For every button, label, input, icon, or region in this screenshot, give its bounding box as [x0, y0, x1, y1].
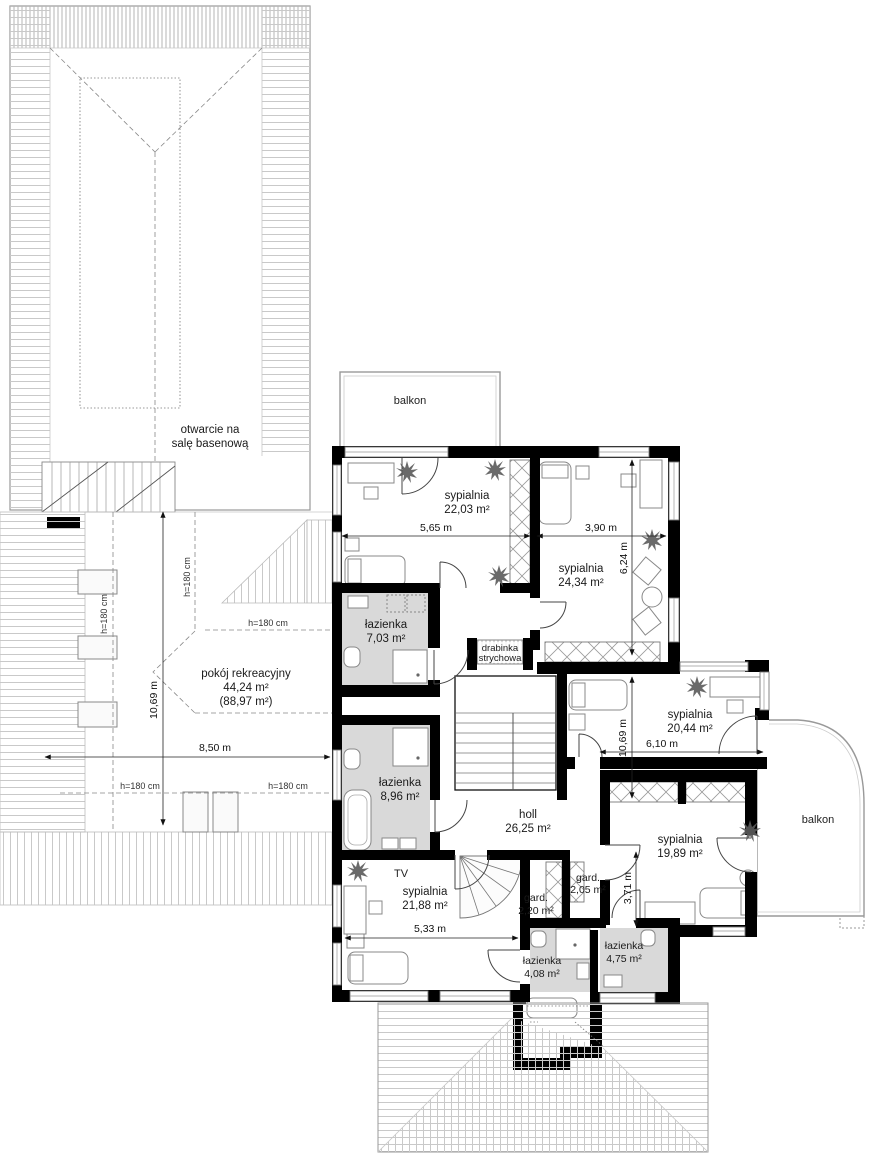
label-lazienka-896-name: łazienka: [379, 777, 422, 789]
label-lazienka-896-area: 8,96 m²: [381, 791, 420, 803]
dim-5-65: 5,65 m: [420, 522, 452, 534]
dim-3-71: 3,71 m: [622, 872, 634, 904]
label-lazienka-408-name: łazienka: [523, 955, 562, 967]
label-sypialnia-2434-area: 24,34 m²: [558, 577, 604, 589]
dim-3-90: 3,90 m: [585, 522, 617, 534]
label-gard-220-area: 2,20 m²: [518, 905, 554, 917]
label-sypialnia-2203-name: sypialnia: [445, 490, 490, 502]
floor-plan: 5,65 m 3,90 m 6,24 m 10,69 m 6,10 m 10,6…: [0, 0, 880, 1159]
label-sypialnia-2203-area: 22,03 m²: [444, 504, 490, 516]
label-gard-205-name: gard.: [576, 872, 600, 884]
label-sypialnia-2044-name: sypialnia: [668, 709, 713, 721]
label-gard-205-area: 2,05 m²: [570, 884, 606, 896]
label-lazienka-703-area: 7,03 m²: [367, 633, 406, 645]
balcony-top: [340, 372, 500, 450]
dim-h180: h=180 cm: [268, 781, 308, 791]
label-rekreacyjny-area2: (88,97 m²): [219, 696, 272, 708]
dim-h180: h=180 cm: [248, 618, 288, 628]
label-lazienka-475-area: 4,75 m²: [606, 953, 642, 965]
recreation-area: [0, 512, 332, 905]
label-sypialnia-2044-area: 20,44 m²: [667, 723, 713, 735]
lower-roof: [378, 1003, 708, 1152]
pool-roof: [10, 6, 310, 529]
label-sypialnia-2434-name: sypialnia: [559, 563, 604, 575]
label-lazienka-408-area: 4,08 m²: [524, 968, 560, 980]
label-gard-220-name: gard.: [524, 892, 548, 904]
dim-8-50: 8,50 m: [199, 742, 231, 754]
label-rekreacyjny-name: pokój rekreacyjny: [201, 668, 291, 680]
label-lazienka-703-name: łazienka: [365, 619, 408, 631]
label-sypialnia-2188-name: sypialnia: [403, 886, 448, 898]
pool-stairs: [42, 462, 175, 512]
label-otwarcie-line2: salę basenową: [172, 438, 249, 450]
label-balkon-top: balkon: [394, 395, 426, 407]
label-drabinka-line2: strychowa: [479, 653, 522, 664]
floor-plan-canvas: 5,65 m 3,90 m 6,24 m 10,69 m 6,10 m 10,6…: [0, 0, 880, 1159]
dim-5-33: 5,33 m: [414, 923, 446, 935]
dim-6-24: 6,24 m: [618, 542, 630, 574]
stairwell: [455, 676, 556, 790]
label-sypialnia-1989-name: sypialnia: [658, 834, 703, 846]
label-rekreacyjny-area: 44,24 m²: [223, 682, 269, 694]
label-holl-area: 26,25 m²: [505, 823, 551, 835]
dim-h180: h=180 cm: [120, 781, 160, 791]
label-tv: TV: [394, 868, 409, 880]
dim-10-69-left: 10,69 m: [148, 681, 160, 719]
label-balkon-right: balkon: [802, 814, 834, 826]
label-lazienka-475-name: łazienka: [605, 940, 644, 952]
dim-6-10: 6,10 m: [646, 738, 678, 750]
label-sypialnia-2188-area: 21,88 m²: [402, 900, 448, 912]
label-sypialnia-1989-area: 19,89 m²: [657, 848, 703, 860]
dim-10-69-right: 10,69 m: [617, 719, 629, 757]
dim-h180: h=180 cm: [99, 594, 109, 634]
label-holl-name: holl: [519, 809, 537, 821]
label-otwarcie-line1: otwarcie na: [181, 424, 240, 436]
dim-h180: h=180 cm: [182, 557, 192, 597]
